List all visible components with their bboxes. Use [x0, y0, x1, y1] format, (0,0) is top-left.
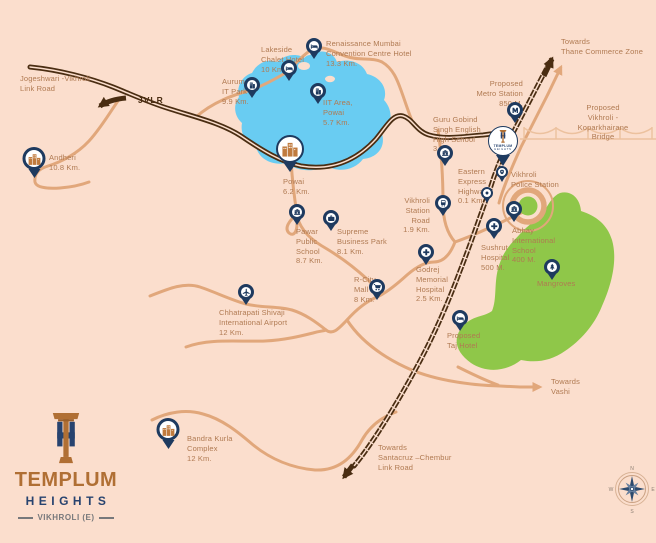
logo-dash-right	[99, 517, 114, 519]
school-icon	[510, 205, 519, 214]
pin-guru-gobind-school[interactable]	[437, 145, 453, 166]
pin-head	[281, 60, 297, 76]
pin-tail	[248, 92, 256, 98]
pin-proposed-taj-hotel[interactable]	[452, 310, 468, 331]
templum-monogram-icon	[499, 130, 507, 143]
pin-tail	[496, 155, 510, 166]
city-icon	[27, 152, 41, 166]
label-sushrut-hospital: Sushrut Hospital 500 M.	[481, 243, 509, 272]
police-icon	[499, 169, 505, 175]
pin-tail	[285, 75, 293, 81]
pin-tail	[327, 225, 335, 231]
label-andheri: Andheri 10.8 Km.	[49, 153, 80, 173]
pin-head	[276, 135, 304, 163]
bed-icon	[456, 314, 465, 323]
road-label-jvlr: JVLR	[138, 95, 164, 106]
logo-subtitle: HEIGHTS	[22, 495, 111, 507]
school-icon	[441, 149, 450, 158]
pin-abhay-international-school[interactable]	[506, 201, 522, 222]
pin-renaissance-hotel[interactable]	[306, 38, 322, 59]
pin-head	[544, 259, 560, 275]
pin-head	[289, 204, 305, 220]
label-pawar-public-school: Pawar Public School 8.7 Km.	[296, 227, 323, 266]
label-vikhroli-police-station: Vikhroli Police Station	[511, 170, 559, 190]
pin-supreme-business-park[interactable]	[323, 210, 339, 231]
pin-templum-heights[interactable]: TEMPLUMHEIGHTS	[488, 126, 518, 166]
bed-icon	[285, 64, 294, 73]
bed-icon	[310, 42, 319, 51]
pin-iit-area-powai[interactable]	[310, 83, 326, 104]
pin-tail	[28, 169, 40, 178]
label-proposed-taj-hotel: Proposed Taj Hotel	[447, 331, 480, 351]
pin-head	[507, 102, 523, 118]
pin-head	[369, 279, 385, 295]
pin-eastern-express-highway[interactable]	[481, 187, 493, 203]
marker-icon	[484, 190, 490, 196]
pin-head	[238, 284, 254, 300]
templum-monogram-icon	[51, 413, 81, 464]
templum-pin-logo: TEMPLUMHEIGHTS	[494, 130, 513, 151]
label-powai: Powai 6.2 Km.	[283, 177, 310, 197]
label-vikhroli-station-road: Vikhroli Station Road 1.9 Km.	[403, 196, 430, 235]
train-icon	[439, 199, 448, 208]
logo-location-text: VIKHROLI (E)	[37, 514, 94, 522]
pin-tail	[310, 53, 318, 59]
cart-icon	[373, 283, 382, 292]
pin-bandra-kurla-complex[interactable]	[157, 418, 180, 449]
pin-pawar-public-school[interactable]	[289, 204, 305, 225]
label-renaissance-hotel: Renaissance Mumbai Convention Centre Hot…	[326, 39, 412, 68]
tree-icon	[548, 263, 557, 272]
pin-aurum-it-park[interactable]	[244, 77, 260, 98]
pin-tail	[499, 177, 505, 182]
city-icon	[161, 423, 175, 437]
city-icon	[281, 140, 299, 158]
metro-icon	[511, 106, 520, 115]
label-mangroves: Mangroves	[537, 279, 575, 289]
hospital-icon	[490, 222, 499, 231]
label-iit-area-powai: IIT Area, Powai 5.7 Km.	[323, 98, 353, 127]
pin-proposed-metro-station[interactable]	[507, 102, 523, 123]
label-chhatrapati-shivaji-airport: Chhatrapati Shivaji International Airpor…	[219, 308, 287, 337]
building-icon	[314, 87, 323, 96]
pin-tail	[484, 198, 490, 203]
pin-tail	[162, 440, 174, 449]
pin-tail	[293, 219, 301, 225]
logo-title: TEMPLUM	[15, 470, 117, 490]
pin-head	[437, 145, 453, 161]
pin-tail	[422, 259, 430, 265]
pin-head	[452, 310, 468, 326]
road-label-towards-vashi: Towards Vashi	[551, 377, 580, 397]
pin-chhatrapati-shivaji-airport[interactable]	[238, 284, 254, 305]
pin-tail	[441, 160, 449, 166]
road-label-towards-thane-commerce-zone: Towards Thane Commerce Zone	[561, 37, 643, 57]
label-godrej-memorial-hospital: Godrej Memorial Hospital 2.5 Km.	[416, 265, 448, 304]
building-icon	[248, 81, 257, 90]
pin-tail	[314, 98, 322, 104]
pin-head	[310, 83, 326, 99]
pin-head	[157, 418, 180, 441]
plane-icon	[242, 288, 251, 297]
pin-lakeside-chalet-hotel[interactable]	[281, 60, 297, 81]
pin-head	[323, 210, 339, 226]
pin-head	[306, 38, 322, 54]
road-label-proposed-vikhroli-koparkhairane-bridge: Proposed Vikhroli - Koparkhairane Bridge	[577, 103, 630, 142]
pin-godrej-memorial-hospital[interactable]	[418, 244, 434, 265]
pin-sushrut-hospital[interactable]	[486, 218, 502, 239]
label-bandra-kurla-complex: Bandra Kurla Complex 12 Km.	[187, 434, 233, 463]
road-label-jogeshwari-vikhroli-link-road: Jogeshwari -Vikhroli Link Road	[20, 74, 90, 94]
pin-tail	[283, 162, 297, 172]
pin-tail	[511, 117, 519, 123]
pin-mangroves[interactable]	[544, 259, 560, 280]
pin-tail	[510, 216, 518, 222]
pin-vikhroli-police-station[interactable]	[496, 166, 508, 182]
pin-tail	[242, 299, 250, 305]
pin-head	[435, 195, 451, 211]
pin-andheri[interactable]	[23, 147, 46, 178]
pin-head	[244, 77, 260, 93]
pin-tail	[439, 210, 447, 216]
road-label-towards-santacruz-chembur-link-road: Towards Santacruz –Chembur Link Road	[378, 443, 452, 472]
pin-head	[486, 218, 502, 234]
pin-head	[23, 147, 46, 170]
briefcase-icon	[327, 214, 336, 223]
pin-logo-subtitle: HEIGHTS	[494, 148, 512, 151]
logo-location: VIKHROLI (E)	[18, 514, 113, 522]
pin-tail	[373, 294, 381, 300]
pin-vikhroli-station-road[interactable]	[435, 195, 451, 216]
pin-head	[506, 201, 522, 217]
logo-dash-left	[18, 517, 33, 519]
templum-heights-logo: TEMPLUM HEIGHTS VIKHROLI (E)	[14, 413, 118, 522]
pin-tail	[548, 274, 556, 280]
pin-head: TEMPLUMHEIGHTS	[488, 126, 518, 156]
hospital-icon	[422, 248, 431, 257]
pin-tail	[490, 233, 498, 239]
school-icon	[293, 208, 302, 217]
label-supreme-business-park: Supreme Business Park 8.1 Km.	[337, 227, 387, 256]
pin-r-city-mall[interactable]	[369, 279, 385, 300]
pin-tail	[456, 325, 464, 331]
vikhroli-location-map: N E S W Jogeshwari -Vikhroli Link RoadJV…	[0, 0, 656, 543]
pin-powai[interactable]	[276, 135, 304, 172]
pin-head	[418, 244, 434, 260]
